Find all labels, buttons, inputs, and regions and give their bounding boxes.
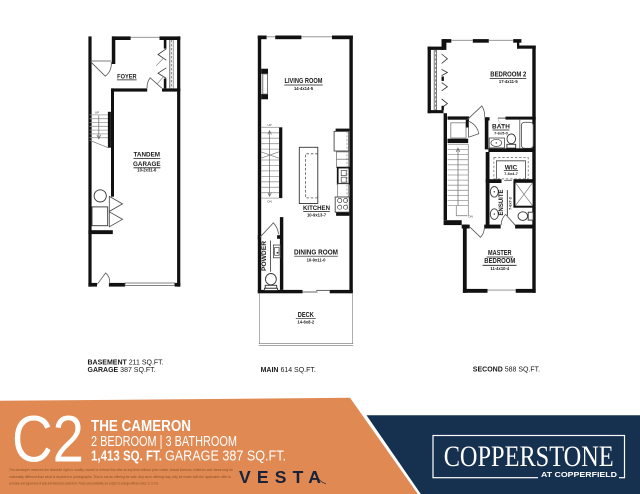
svg-text:MASTER: MASTER <box>488 250 512 257</box>
svg-text:BASEMENT 211 SQ.FT.: BASEMENT 211 SQ.FT. <box>88 360 164 367</box>
svg-text:ENSUITE: ENSUITE <box>498 190 505 216</box>
svg-text:10-2x31-6: 10-2x31-6 <box>137 168 157 173</box>
svg-text:1,413 SQ. FT.: 1,413 SQ. FT. <box>91 448 162 464</box>
svg-text:TANDEM: TANDEM <box>134 152 161 159</box>
svg-text:FOYER: FOYER <box>117 73 137 80</box>
svg-text:GARAGE 387 SQ.FT.: GARAGE 387 SQ.FT. <box>165 448 286 464</box>
svg-text:purchase and agreement of sale: purchase and agreement of sale and discl… <box>9 481 159 485</box>
svg-text:C2: C2 <box>12 402 84 476</box>
svg-text:17-4x11-5: 17-4x11-5 <box>499 79 519 84</box>
svg-text:noticeably different than what: noticeably different than what is depict… <box>9 475 231 479</box>
svg-text:UP: UP <box>268 123 272 127</box>
svg-text:COPPERSTONE: COPPERSTONE <box>444 440 614 473</box>
svg-text:DN: DN <box>468 215 472 219</box>
svg-text:14-6x8-2: 14-6x8-2 <box>297 320 314 325</box>
svg-text:11-4x10-4: 11-4x10-4 <box>490 266 510 271</box>
svg-text:BEDROOM: BEDROOM <box>484 258 515 265</box>
svg-text:BATH: BATH <box>492 123 510 130</box>
svg-text:BEDROOM 2: BEDROOM 2 <box>490 72 526 79</box>
svg-text:10-9x13-7: 10-9x13-7 <box>307 212 327 217</box>
svg-text:The developer reserves the abs: The developer reserves the absolute righ… <box>9 468 233 472</box>
svg-text:DECK: DECK <box>298 312 314 319</box>
svg-text:14-4x14-5: 14-4x14-5 <box>294 86 314 91</box>
svg-text:7-6x5-0: 7-6x5-0 <box>494 131 509 136</box>
svg-text:LIVING ROOM: LIVING ROOM <box>285 78 323 85</box>
svg-text:7-6x7-3: 7-6x7-3 <box>508 197 512 210</box>
svg-text:GARAGE 387 SQ.FT.: GARAGE 387 SQ.FT. <box>88 367 156 374</box>
svg-text:10-9x11-0: 10-9x11-0 <box>307 257 327 262</box>
svg-text:AT COPPERFIELD: AT COPPERFIELD <box>541 472 617 479</box>
svg-text:MAIN 614 SQ.FT.: MAIN 614 SQ.FT. <box>261 367 316 374</box>
svg-text:UP: UP <box>95 111 99 115</box>
svg-text:DN: DN <box>267 200 271 204</box>
svg-text:SECOND 588 SQ.FT.: SECOND 588 SQ.FT. <box>473 366 540 373</box>
svg-text:7-6x4-7: 7-6x4-7 <box>504 171 519 176</box>
svg-text:VESTA: VESTA <box>239 467 327 487</box>
svg-text:POWDER: POWDER <box>261 241 268 271</box>
svg-text:DINING ROOM: DINING ROOM <box>294 250 338 257</box>
svg-text:KITCHEN: KITCHEN <box>303 205 330 212</box>
